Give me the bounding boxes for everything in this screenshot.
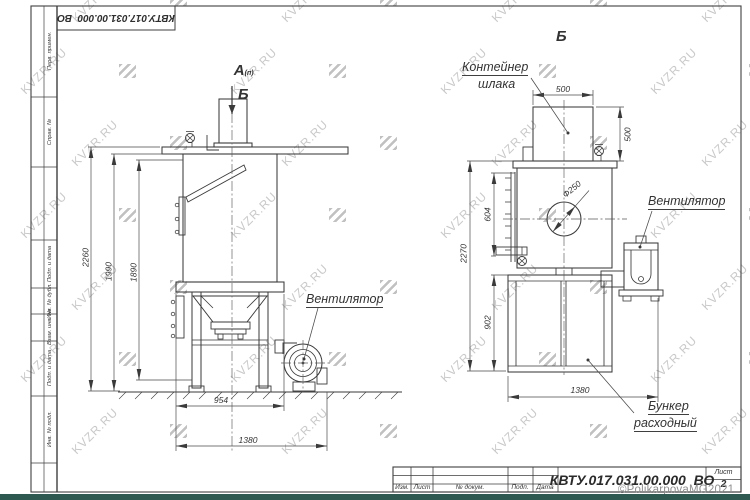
dim-1380-right: 1380 — [562, 385, 598, 396]
bottom-page-bar — [0, 494, 750, 500]
section-b-mark: Б — [238, 86, 249, 103]
dim-1990: 1990 — [104, 254, 115, 290]
title-col-list: Лист — [402, 484, 442, 491]
dim-1890: 1890 — [129, 255, 140, 291]
feed-hopper-callout-line2: расходный — [634, 416, 697, 432]
slag-container-callout-line1: Контейнер — [462, 60, 528, 76]
side-view-centerlines — [503, 100, 627, 375]
rotated-doc-number-stamp: КВТУ.017.031.00.000 ВО — [57, 6, 175, 30]
title-col-dokum: № докум. — [450, 484, 490, 491]
dim-902: 902 — [483, 305, 494, 341]
margin-field-sprav-n: Справ. № — [45, 112, 55, 152]
dim-2260: 2260 — [81, 240, 92, 276]
view-b-label: Б — [556, 28, 567, 45]
fan-callout-left: Вентилятор — [306, 292, 383, 308]
dim-604: 604 — [483, 197, 494, 233]
view-a-subscript: (п) — [245, 70, 254, 77]
margin-field-vzam-inv: Взам. инв. № — [45, 307, 55, 347]
dim-500-width: 500 — [545, 84, 581, 95]
side-view-geometry — [496, 107, 663, 372]
dim-2270: 2270 — [459, 236, 470, 272]
front-view-geometry — [118, 99, 402, 399]
view-a-letter: А — [234, 62, 245, 79]
feed-hopper-callout-line1: Бункер — [648, 399, 689, 415]
margin-field-inv-podl: Инв. № подл. — [45, 409, 55, 449]
dim-500-height: 500 — [623, 117, 634, 153]
drawing-sheet: KVZR.RUKVZR.RUKVZR.RUKVZR.RUKVZR.RUKVZR.… — [0, 0, 750, 500]
margin-field-podp-data-1: Подп. и дата — [45, 244, 55, 284]
margin-field-podp-data-2: Подп. и дата — [45, 348, 55, 388]
front-view-centerlines — [232, 96, 331, 452]
fan-callout-right: Вентилятор — [648, 194, 725, 210]
slag-container-callout-line2: шлака — [478, 77, 515, 91]
margin-field-perv-primen: Перв. примен. — [45, 31, 55, 71]
dim-1380-left: 1380 — [230, 435, 266, 446]
sheet-label: Лист — [706, 469, 741, 476]
dim-954: 954 — [203, 395, 239, 406]
